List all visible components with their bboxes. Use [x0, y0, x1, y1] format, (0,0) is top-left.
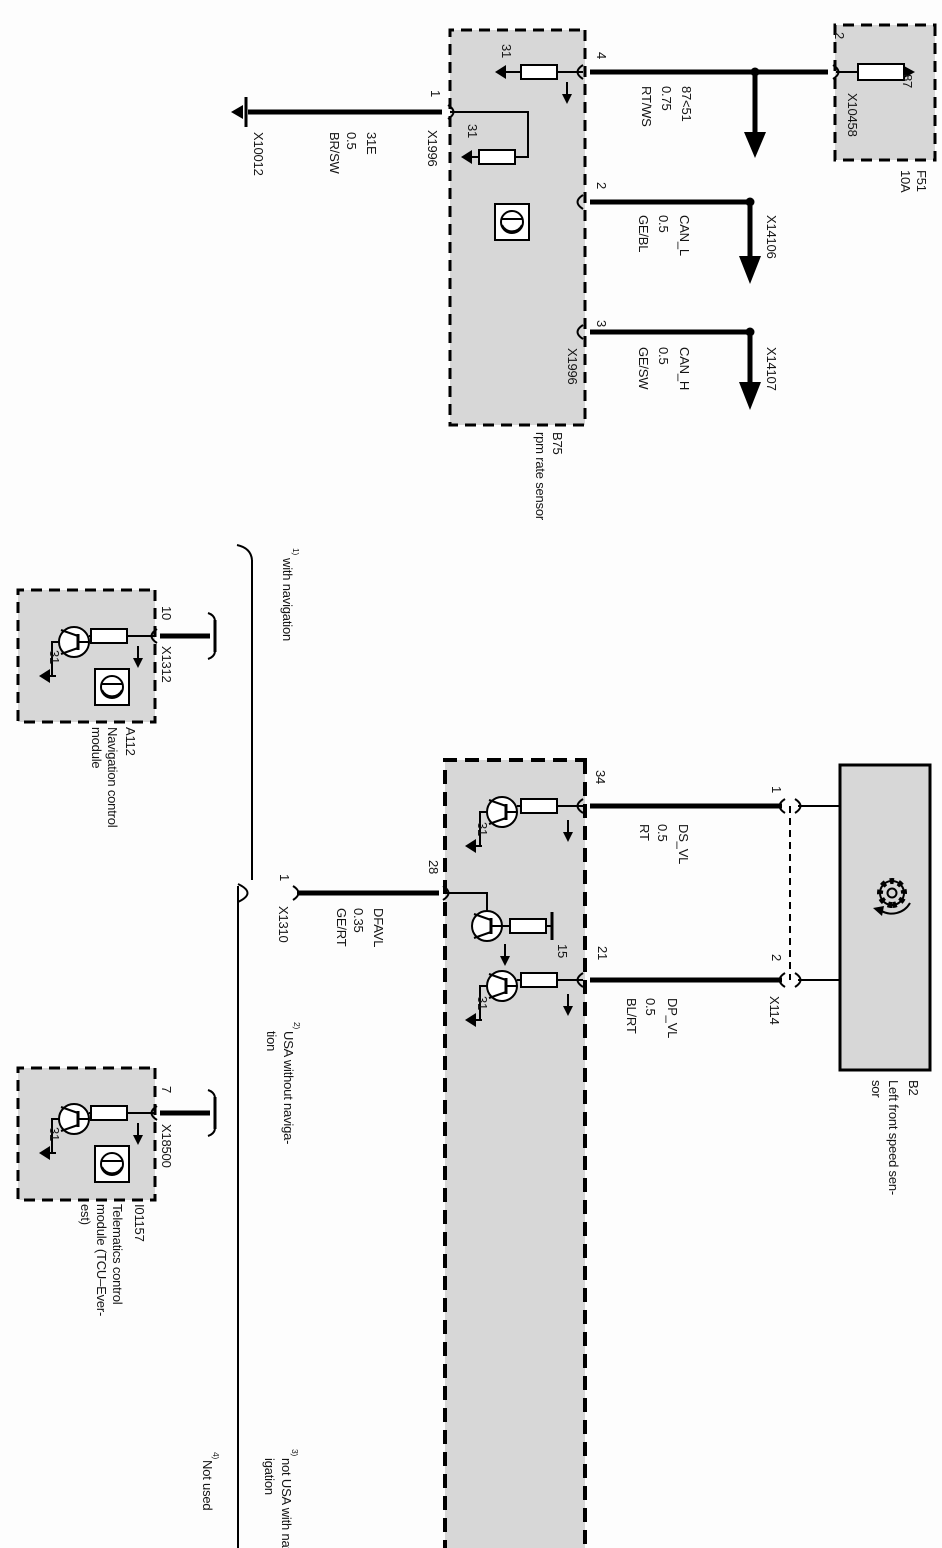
module-pin34-label: 34	[592, 770, 608, 784]
not-usa-footnote: 3)	[290, 1449, 300, 1456]
x1310-connector-icon	[293, 886, 299, 900]
x1310-pin-label: 1	[276, 874, 292, 881]
tcu-code-label: I01157	[131, 1204, 147, 1242]
tcu-module-icon	[95, 1146, 129, 1182]
a112-box	[18, 590, 155, 722]
schematic-drawing	[0, 0, 942, 1548]
x14106-label: X14106	[763, 215, 779, 259]
a112-ground-label: 31	[46, 650, 62, 664]
tcu-pin-label: 7	[158, 1086, 174, 1093]
usa-label2: tion	[263, 1031, 279, 1051]
fuse-connector-label: X10458	[844, 93, 860, 137]
b75-code-label: B75	[549, 432, 565, 455]
dfa-gauge-label: 0.35	[350, 908, 366, 933]
module-transistor3-icon	[487, 971, 517, 1001]
wire87-color-label: RT/WS	[638, 86, 654, 127]
not-used-footnote: 4)	[211, 1452, 221, 1459]
b2-name1-label: Left front speed sen-	[885, 1080, 901, 1195]
a112-module-icon	[95, 669, 129, 705]
fuse-terminal-label: 87	[899, 74, 915, 88]
diagram-stage: 87 2 X10458 F51 10A 87<51 0.75 RT/WS X14…	[0, 0, 942, 1548]
x1310-mate-icon	[238, 884, 248, 902]
b75-pin2-label: 2	[593, 182, 609, 189]
x10012-label: X10012	[250, 132, 266, 176]
wire31e-color-label: BR/SW	[326, 132, 342, 174]
usa-label1: USA without naviga-	[280, 1031, 296, 1144]
b2-code-label: B2	[905, 1080, 921, 1096]
module-ground2-label: 31	[474, 996, 490, 1010]
canh-color-label: GE/SW	[635, 347, 651, 389]
module-transistor2-icon	[472, 911, 502, 941]
a112-name1-label: Navigation control	[104, 727, 120, 827]
b75-pin4-label: 4	[593, 52, 609, 59]
usa-footnote: 2)	[292, 1022, 302, 1029]
module-transistor1-icon	[487, 797, 517, 827]
can-h-arrow-icon	[739, 382, 761, 410]
x114-label: X114	[766, 996, 782, 1025]
b75-ground2-label: 31	[464, 124, 480, 138]
ds-name-label: DS_VL	[675, 824, 691, 864]
module-ground1-label: 31	[474, 822, 490, 836]
b2-box	[840, 765, 930, 1070]
wire87-name-label: 87<51	[678, 86, 694, 122]
canl-name-label: CAN_L	[676, 215, 692, 256]
wire-continuation-arrow-icon	[744, 132, 766, 158]
tcu-ground-label: 31	[46, 1127, 62, 1141]
ds-gauge-label: 0.5	[654, 824, 670, 841]
x14107-label: X14107	[763, 347, 779, 391]
b75-pin3-label: 3	[593, 320, 609, 327]
a112-pin-label: 10	[158, 606, 174, 620]
not-usa-label2: igation	[261, 1458, 277, 1495]
wire-87-51	[590, 68, 828, 159]
wire-31e	[231, 97, 442, 127]
with-nav-footnote: 1)	[291, 548, 301, 555]
b75-pin1-label: 1	[427, 90, 443, 97]
dp-gauge-label: 0.5	[642, 998, 658, 1015]
module-pin28-label: 28	[425, 860, 441, 874]
tcu-name3-label: est)	[77, 1204, 93, 1225]
b75-name-label: rpm rate sensor	[532, 432, 548, 520]
not-used-label: Not used	[199, 1460, 215, 1510]
dfa-color-label: GE/RT	[333, 908, 349, 947]
b75-sensor-icon	[495, 204, 529, 240]
x1312-label: X1312	[158, 646, 174, 683]
b2-pin1-label: 1	[768, 786, 784, 793]
x1310-label: X1310	[275, 906, 291, 943]
a112-code-label: A112	[122, 727, 138, 756]
x10012-ground-icon	[231, 105, 243, 119]
fuse-pin-label: 2	[831, 32, 847, 39]
x18500-label: X18500	[158, 1124, 174, 1168]
tcu-name2-label: module (TCU–Ever-	[93, 1204, 109, 1316]
dp-color-label: BL/RT	[623, 998, 639, 1034]
wire87-gauge-label: 0.75	[658, 86, 674, 111]
fuse-rating-label: 10A	[897, 170, 913, 193]
wire31e-name-label: 31E	[363, 132, 379, 155]
b2-pin2-label: 2	[768, 954, 784, 961]
wire-dfavl	[293, 886, 439, 900]
dfa-name-label: DFAVL	[370, 908, 386, 947]
tcu-transistor-icon	[59, 1104, 89, 1134]
b2-name2-label: sor	[868, 1080, 884, 1097]
b75-connector-bottom-label: X1996	[424, 130, 440, 167]
wiring-diagram-page: 87 2 X10458 F51 10A 87<51 0.75 RT/WS X14…	[0, 0, 942, 1548]
tcu-box	[18, 1068, 155, 1200]
not-usa-label1: not USA with nav-	[278, 1458, 294, 1548]
can-l-arrow-icon	[739, 256, 761, 284]
wire31e-gauge-label: 0.5	[343, 132, 359, 149]
canl-gauge-label: 0.5	[655, 215, 671, 232]
a112-name2-label: module	[88, 727, 104, 768]
module-term15-label: 15	[554, 944, 570, 958]
module-pin21-label: 21	[594, 946, 610, 960]
with-nav-label: with navigation	[279, 558, 295, 641]
control-module-box	[445, 760, 585, 1548]
tcu-name1-label: Telematics control	[109, 1204, 125, 1304]
b75-connector-top-label: X1996	[564, 348, 580, 385]
a112-transistor-icon	[59, 627, 89, 657]
ds-color-label: RT	[636, 824, 652, 841]
canl-color-label: GE/BL	[635, 215, 651, 252]
dp-name-label: DP_VL	[664, 998, 680, 1038]
option-lines	[237, 545, 252, 1548]
b75-ground1-label: 31	[498, 44, 514, 58]
canh-name-label: CAN_H	[676, 347, 692, 390]
canh-gauge-label: 0.5	[655, 347, 671, 364]
fuse-code-label: F51	[913, 170, 929, 192]
